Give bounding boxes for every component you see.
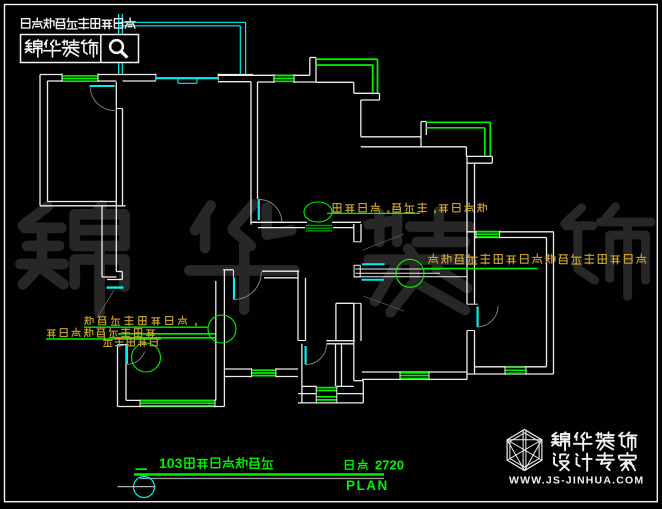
svg-text:2720: 2720 [375, 458, 404, 473]
svg-text:PLAN: PLAN [346, 478, 389, 493]
svg-text:103: 103 [159, 455, 183, 471]
svg-text:WWW.JS-JINHUA.COM: WWW.JS-JINHUA.COM [509, 475, 644, 487]
